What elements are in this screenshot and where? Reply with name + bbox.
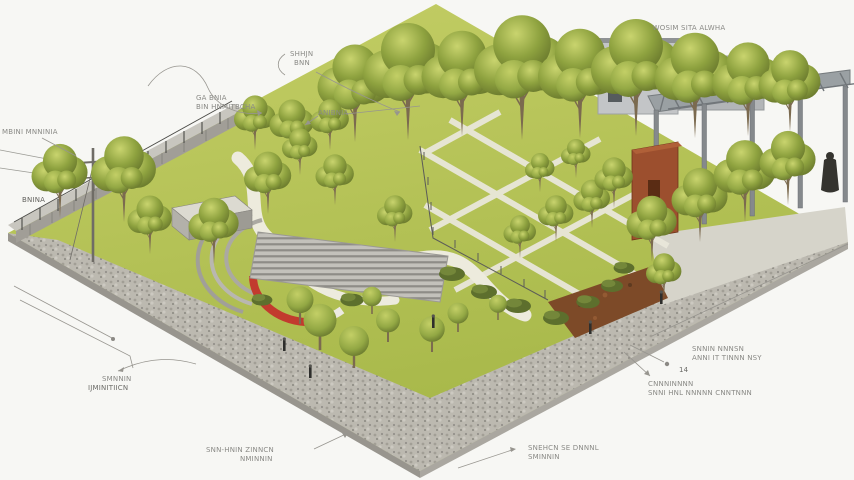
annotation-right-upper: SNNIN NNNSN ANNI IT TINNN NSY <box>692 345 762 363</box>
annotation-right-upper-line1: SNNIN NNNSN <box>692 345 762 354</box>
annotation-bottom-right: SNEHCN SE DNNNL SMINNIN <box>528 444 599 462</box>
annotation-bottom-right-line2: SMINNIN <box>528 453 599 462</box>
annotation-right-lower-line1: CNNNINNNN <box>648 380 752 389</box>
park-scene <box>0 0 854 480</box>
annotation-top-right-text: WOSIM SITA ALWHA <box>628 24 750 33</box>
annotation-bottom-center-line2: NMINNIN <box>206 455 274 464</box>
annotation-bottom-center: SNN-HNIN ZINNCN NMINNIN <box>206 446 274 464</box>
statue-figure <box>821 152 839 193</box>
annotation-upper-left-line2: BIN HNMITBCHA <box>196 103 255 112</box>
annotation-bottom-center-line1: SNN-HNIN ZINNCN <box>206 446 274 455</box>
annotation-upper-left-line1: GA BNIA <box>196 94 255 103</box>
annotation-small-mid-text: ANIBNIA <box>318 109 348 118</box>
annotation-right-lower: CNNNINNNN SNNI HNL NNNNN CNNTNNN <box>648 380 752 398</box>
annotation-brace: SHHJN BNN <box>290 50 313 68</box>
annotation-bottom-left-line1: SMNNIN <box>88 375 131 384</box>
annotation-pole: MBINI MNNINIA <box>2 128 58 137</box>
landscape-rendering: WOSIM SITA ALWHA SHHJN BNN GA BNIA BIN H… <box>0 0 854 480</box>
annotation-marker-14-text: 14 <box>679 366 688 375</box>
annotation-bottom-left: SMNNIN IJMINITIICN <box>88 375 131 393</box>
annotation-top-right: WOSIM SITA ALWHA <box>628 24 750 33</box>
annotation-brace-line2: BNN <box>290 59 313 68</box>
annotation-right-upper-line2: ANNI IT TINNN NSY <box>692 354 762 363</box>
annotation-bottom-left-line2: IJMINITIICN <box>88 384 131 393</box>
annotation-small-mid: ANIBNIA <box>318 109 348 118</box>
annotation-brace-line1: SHHJN <box>290 50 313 59</box>
annotation-pole-text: MBINI MNNINIA <box>2 128 58 137</box>
annotation-bottom-right-line1: SNEHCN SE DNNNL <box>528 444 599 453</box>
annotation-right-lower-line2: SNNI HNL NNNNN CNNTNNN <box>648 389 752 398</box>
annotation-upper-left: GA BNIA BIN HNMITBCHA <box>196 94 255 112</box>
annotation-pole-base: BNINA <box>22 196 45 205</box>
annotation-pole-base-text: BNINA <box>22 196 45 205</box>
annotation-marker-14: 14 <box>679 366 688 375</box>
